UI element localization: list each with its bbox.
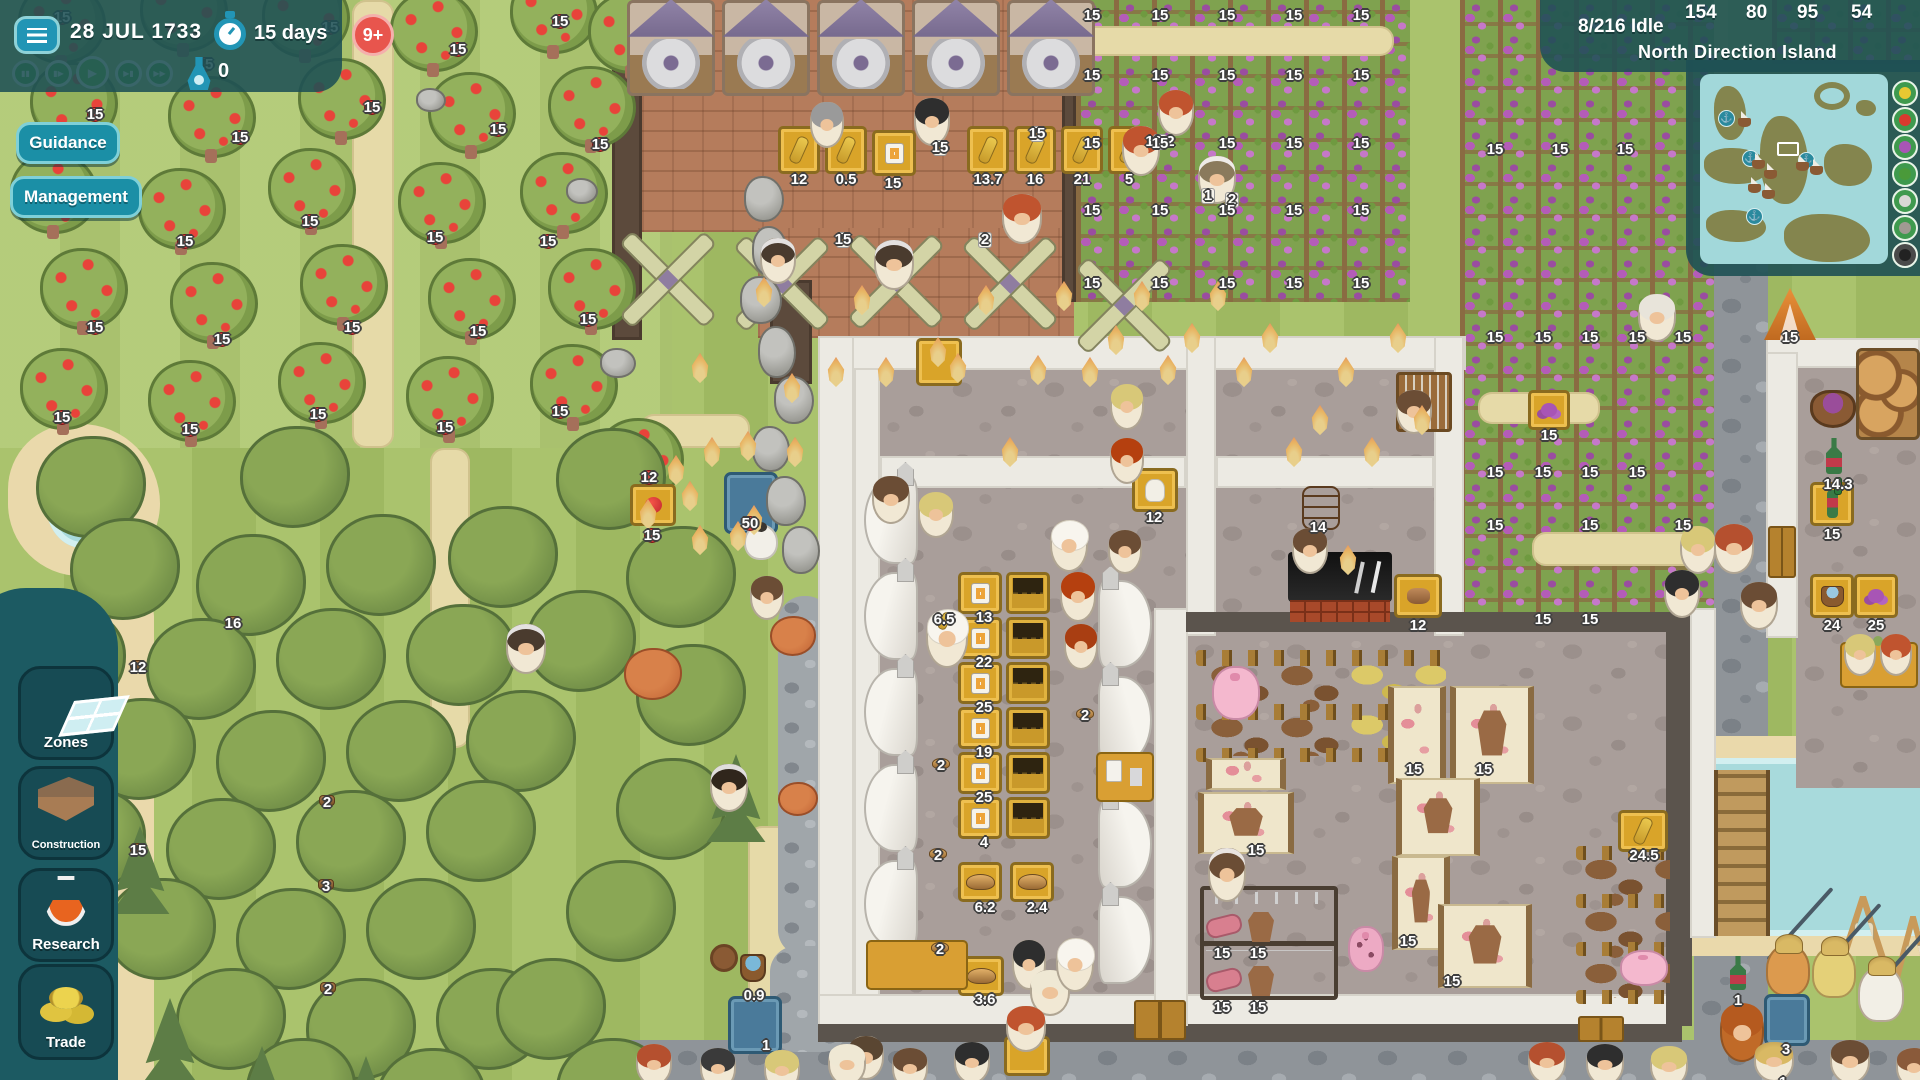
stopwatch-icon <box>214 18 246 50</box>
fire-icon <box>1360 437 1384 467</box>
world-sprite[interactable] <box>1290 600 1390 622</box>
fire-icon <box>1386 323 1410 353</box>
world-sprite[interactable] <box>1006 707 1050 749</box>
world-sprite[interactable] <box>1450 686 1534 784</box>
fire-icon <box>1104 325 1128 355</box>
island-name: North Direction Island <box>1638 42 1837 63</box>
research-button[interactable]: Research <box>18 868 114 962</box>
world-sprite[interactable] <box>627 0 715 96</box>
villager[interactable] <box>1064 624 1098 670</box>
world-sprite[interactable] <box>296 790 406 892</box>
villager[interactable] <box>636 1044 672 1080</box>
villager[interactable] <box>1680 526 1716 574</box>
world-sprite[interactable] <box>366 878 476 980</box>
minimap-island <box>1814 82 1850 110</box>
world-sprite[interactable] <box>1248 912 1274 942</box>
world-sprite[interactable] <box>864 668 918 756</box>
world-sprite[interactable] <box>390 0 478 72</box>
world-sprite[interactable] <box>1620 950 1668 986</box>
world-sprite[interactable] <box>1212 666 1260 720</box>
villager[interactable] <box>1292 528 1328 574</box>
villager[interactable] <box>1002 194 1042 244</box>
world-sprite[interactable] <box>1348 926 1384 972</box>
world-sprite[interactable] <box>1394 574 1442 618</box>
world-sprite[interactable] <box>1006 662 1050 704</box>
world-sprite[interactable] <box>710 944 738 972</box>
world-sprite[interactable] <box>1528 390 1570 430</box>
bread-icon <box>929 848 947 859</box>
coal-icon[interactable] <box>1892 242 1918 268</box>
terrain-region <box>1714 228 1768 776</box>
fire-icon <box>1308 405 1332 435</box>
fire-icon <box>998 437 1022 467</box>
wood-icon <box>130 660 146 671</box>
terrain-region <box>1154 608 1188 1026</box>
game-screen: 15 15 15 15 15 15 15 15 <box>0 0 1920 1080</box>
world-sprite[interactable] <box>600 348 636 378</box>
villager[interactable] <box>1108 530 1142 574</box>
terrain-region <box>1690 608 1716 938</box>
villager[interactable] <box>1830 1040 1870 1080</box>
game-date: 28 JUL 1733 <box>70 20 202 44</box>
villager[interactable] <box>760 238 796 284</box>
villager[interactable] <box>954 1042 990 1080</box>
world-sprite[interactable] <box>916 338 962 386</box>
villager[interactable] <box>810 102 844 148</box>
villager[interactable] <box>1158 90 1194 136</box>
world-sprite[interactable] <box>428 72 516 154</box>
trade-button[interactable]: Trade <box>18 964 114 1060</box>
villager[interactable] <box>892 1048 928 1080</box>
world-sprite[interactable] <box>466 690 576 792</box>
world-sprite[interactable] <box>1826 438 1842 474</box>
ship-icon <box>1762 190 1775 199</box>
villager[interactable] <box>700 1048 736 1080</box>
notification-badge[interactable]: 9+ <box>352 14 394 56</box>
fire-icon <box>700 437 724 467</box>
world-sprite[interactable] <box>722 0 810 96</box>
terrain-region <box>1576 990 1672 1004</box>
villager[interactable] <box>872 476 910 524</box>
world-sprite[interactable] <box>872 130 916 176</box>
apple-icon <box>540 234 556 249</box>
villager[interactable] <box>1844 634 1876 676</box>
bread-icon <box>932 758 950 769</box>
world-sprite[interactable] <box>326 514 436 616</box>
villager[interactable] <box>914 98 950 146</box>
villager[interactable] <box>918 492 954 538</box>
world-sprite[interactable] <box>1810 482 1854 526</box>
ship-icon <box>1738 118 1751 127</box>
world-sprite[interactable] <box>300 244 388 326</box>
world-sprite[interactable] <box>1396 778 1480 856</box>
world-sprite[interactable] <box>864 764 918 852</box>
world-sprite[interactable] <box>1812 946 1856 998</box>
world-sprite[interactable] <box>728 996 782 1054</box>
fire-icon <box>1258 323 1282 353</box>
world-sprite[interactable] <box>276 608 386 710</box>
world-sprite[interactable] <box>1014 126 1056 174</box>
fire-icon <box>1180 323 1204 353</box>
world-sprite[interactable] <box>1388 686 1446 784</box>
villager[interactable] <box>1006 1006 1046 1052</box>
villager[interactable] <box>1740 582 1778 630</box>
villager[interactable] <box>1650 1046 1688 1080</box>
minimap-viewport <box>1777 142 1799 156</box>
world-sprite[interactable] <box>566 860 676 962</box>
science-count: 0 <box>218 60 229 83</box>
world-sprite[interactable] <box>958 862 1002 902</box>
world-sprite[interactable] <box>616 758 726 860</box>
fire-icon <box>1156 355 1180 385</box>
hamburger-menu-button[interactable] <box>14 16 60 54</box>
world-sprite[interactable] <box>778 782 818 816</box>
management-button[interactable]: Management <box>10 176 142 218</box>
ship-icon <box>1752 160 1765 169</box>
villager[interactable] <box>1586 1044 1624 1080</box>
world-sprite[interactable] <box>1768 526 1796 578</box>
villager[interactable] <box>1396 390 1432 434</box>
villager[interactable] <box>1110 384 1144 430</box>
villager[interactable] <box>1528 1042 1566 1080</box>
world-sprite[interactable] <box>967 126 1009 174</box>
research-flask-icon <box>45 876 87 926</box>
world-sprite[interactable] <box>958 662 1002 704</box>
corn-icon[interactable] <box>1892 80 1918 106</box>
fire-icon <box>1130 281 1154 311</box>
world-sprite[interactable] <box>1766 944 1810 996</box>
world-sprite[interactable] <box>406 356 494 438</box>
world-sprite[interactable] <box>416 88 446 112</box>
world-sprite[interactable] <box>817 0 905 96</box>
world-sprite[interactable] <box>1134 1000 1186 1040</box>
world-sprite[interactable] <box>548 66 636 148</box>
terrain-region <box>1216 456 1434 488</box>
terrain-region <box>818 1024 1682 1042</box>
world-sprite[interactable] <box>566 178 598 204</box>
world-sprite[interactable] <box>138 168 226 250</box>
fire-icon <box>850 285 874 315</box>
construction-box-icon <box>38 777 94 821</box>
timer-label: 15 days <box>254 22 327 45</box>
world-sprite[interactable] <box>1578 1016 1624 1042</box>
world-sprite[interactable] <box>1810 574 1854 618</box>
bread-icon <box>1076 708 1094 719</box>
world-sprite[interactable] <box>1006 572 1050 614</box>
world-sprite[interactable] <box>1198 792 1294 854</box>
villager[interactable] <box>874 240 914 290</box>
world-sprite[interactable] <box>428 258 516 340</box>
world-sprite[interactable] <box>744 176 784 222</box>
world-sprite[interactable] <box>1854 574 1898 618</box>
villager[interactable] <box>1664 570 1700 618</box>
villager[interactable] <box>506 624 546 674</box>
world-sprite[interactable] <box>1206 758 1286 790</box>
fire-icon <box>824 357 848 387</box>
guidance-button[interactable]: Guidance <box>16 122 120 164</box>
stone-icon[interactable] <box>1892 188 1918 214</box>
world-sprite[interactable] <box>1098 800 1152 888</box>
terrain-region <box>1196 650 1448 666</box>
world-sprite[interactable] <box>548 248 636 330</box>
world-sprite[interactable] <box>744 524 778 560</box>
world-sprite[interactable] <box>1856 348 1920 440</box>
ship-icon <box>1810 166 1823 175</box>
terrain-region <box>1666 612 1692 1026</box>
villager[interactable] <box>710 764 748 812</box>
world-sprite[interactable] <box>864 860 918 948</box>
world-sprite[interactable] <box>1858 966 1904 1022</box>
world-sprite[interactable] <box>958 752 1002 794</box>
fire-icon <box>1052 281 1076 311</box>
world-sprite[interactable] <box>1061 126 1103 174</box>
world-sprite[interactable] <box>958 707 1002 749</box>
world-sprite[interactable] <box>952 226 1064 338</box>
world-sprite[interactable] <box>268 148 356 230</box>
world-sprite[interactable] <box>1066 248 1178 360</box>
villager[interactable] <box>1714 524 1754 574</box>
fire-icon <box>1206 281 1230 311</box>
world-sprite[interactable] <box>1810 390 1856 428</box>
hamburger-icon <box>27 28 47 43</box>
terrain-region <box>818 336 854 1026</box>
world-sprite[interactable] <box>216 710 326 812</box>
world-sprite[interactable] <box>170 262 258 344</box>
ship-icon <box>1748 184 1761 193</box>
villager[interactable] <box>926 610 968 668</box>
fire-icon <box>974 285 998 315</box>
world-sprite[interactable] <box>40 248 128 330</box>
construction-button[interactable]: Construction <box>18 766 114 860</box>
villager[interactable] <box>1896 1048 1920 1080</box>
world-sprite[interactable] <box>1096 752 1154 802</box>
fire-icon <box>1078 357 1102 387</box>
fire-icon <box>688 353 712 383</box>
world-sprite[interactable] <box>774 376 814 424</box>
fire-icon <box>678 481 702 511</box>
world-sprite[interactable] <box>864 572 918 660</box>
world-sprite[interactable] <box>20 348 108 430</box>
ship-icon <box>1796 162 1809 171</box>
ship-icon <box>1764 170 1777 179</box>
world-sprite[interactable] <box>1098 676 1152 764</box>
world-sprite[interactable] <box>1730 956 1746 990</box>
villager[interactable] <box>1198 156 1236 204</box>
villager[interactable] <box>828 1044 866 1080</box>
world-sprite[interactable] <box>1098 580 1152 668</box>
minimap-island <box>1824 144 1872 186</box>
world-sprite[interactable] <box>1302 486 1340 530</box>
world-sprite[interactable] <box>770 616 816 656</box>
world-sprite[interactable] <box>1764 994 1810 1046</box>
world-sprite[interactable] <box>106 878 216 980</box>
world-sprite[interactable] <box>1618 810 1668 852</box>
world-sprite[interactable] <box>1010 862 1054 902</box>
idle-population[interactable]: 8/216 Idle <box>1578 16 1664 38</box>
fire-icon <box>1334 357 1358 387</box>
terrain-region <box>1576 894 1672 908</box>
world-sprite[interactable] <box>1007 0 1095 96</box>
villager[interactable] <box>1110 438 1144 484</box>
villager[interactable] <box>1056 938 1094 992</box>
world-sprite[interactable] <box>1006 797 1050 839</box>
terrain-region <box>1714 770 1770 936</box>
world-sprite[interactable] <box>1098 896 1152 984</box>
villager[interactable] <box>1638 294 1676 342</box>
world-sprite[interactable] <box>346 700 456 802</box>
world-sprite[interactable] <box>278 342 366 424</box>
world-sprite[interactable] <box>740 954 766 982</box>
villager[interactable] <box>1880 634 1912 676</box>
world-sprite[interactable] <box>406 604 516 706</box>
world-sprite[interactable] <box>958 572 1002 614</box>
world-sprite[interactable] <box>1006 752 1050 794</box>
villager[interactable] <box>1122 126 1160 176</box>
world-sprite[interactable] <box>510 0 598 54</box>
apple-icon[interactable] <box>1892 107 1918 133</box>
rock-icon[interactable] <box>1892 215 1918 241</box>
world-sprite[interactable] <box>1006 617 1050 659</box>
anchor-icon <box>1718 110 1735 127</box>
world-sprite[interactable] <box>958 797 1002 839</box>
villager[interactable] <box>764 1050 800 1080</box>
trade-coins-icon <box>49 987 83 1009</box>
terrain-region <box>1076 26 1394 56</box>
world-sprite[interactable] <box>866 940 968 990</box>
flour-icon <box>978 232 992 248</box>
terrain-region <box>1186 336 1216 636</box>
world-sprite[interactable] <box>426 780 536 882</box>
villager[interactable] <box>1050 520 1088 572</box>
world-sprite[interactable] <box>630 484 676 526</box>
world-sprite[interactable] <box>624 648 682 700</box>
fire-icon <box>1282 437 1306 467</box>
melon-icon[interactable] <box>1892 161 1918 187</box>
flour-icon <box>836 232 850 248</box>
world-sprite[interactable] <box>240 426 350 528</box>
world-sprite[interactable] <box>782 526 820 574</box>
world-sprite[interactable] <box>752 426 790 472</box>
villager[interactable] <box>1060 572 1096 622</box>
minimap-island <box>1856 100 1876 116</box>
villager[interactable] <box>1754 1042 1794 1080</box>
world-sprite[interactable] <box>766 476 806 526</box>
villager[interactable] <box>1208 848 1246 902</box>
world-sprite[interactable] <box>1764 288 1816 340</box>
world-sprite[interactable] <box>1248 966 1274 996</box>
villager[interactable] <box>750 576 784 620</box>
world-sprite[interactable] <box>912 0 1000 96</box>
world-sprite[interactable] <box>626 526 736 628</box>
anchor-icon <box>1746 208 1763 225</box>
zones-button[interactable]: Zones <box>18 666 114 760</box>
fire-icon <box>874 357 898 387</box>
world-sprite[interactable] <box>448 506 558 608</box>
world-sprite[interactable] <box>1438 904 1532 988</box>
world-sprite[interactable] <box>398 162 486 244</box>
fire-icon <box>1232 357 1256 387</box>
terrain-region <box>758 228 1074 338</box>
fire-icon <box>1026 355 1050 385</box>
world-sprite[interactable] <box>148 360 236 442</box>
grapes-icon[interactable] <box>1892 134 1918 160</box>
world-sprite[interactable] <box>758 326 796 378</box>
